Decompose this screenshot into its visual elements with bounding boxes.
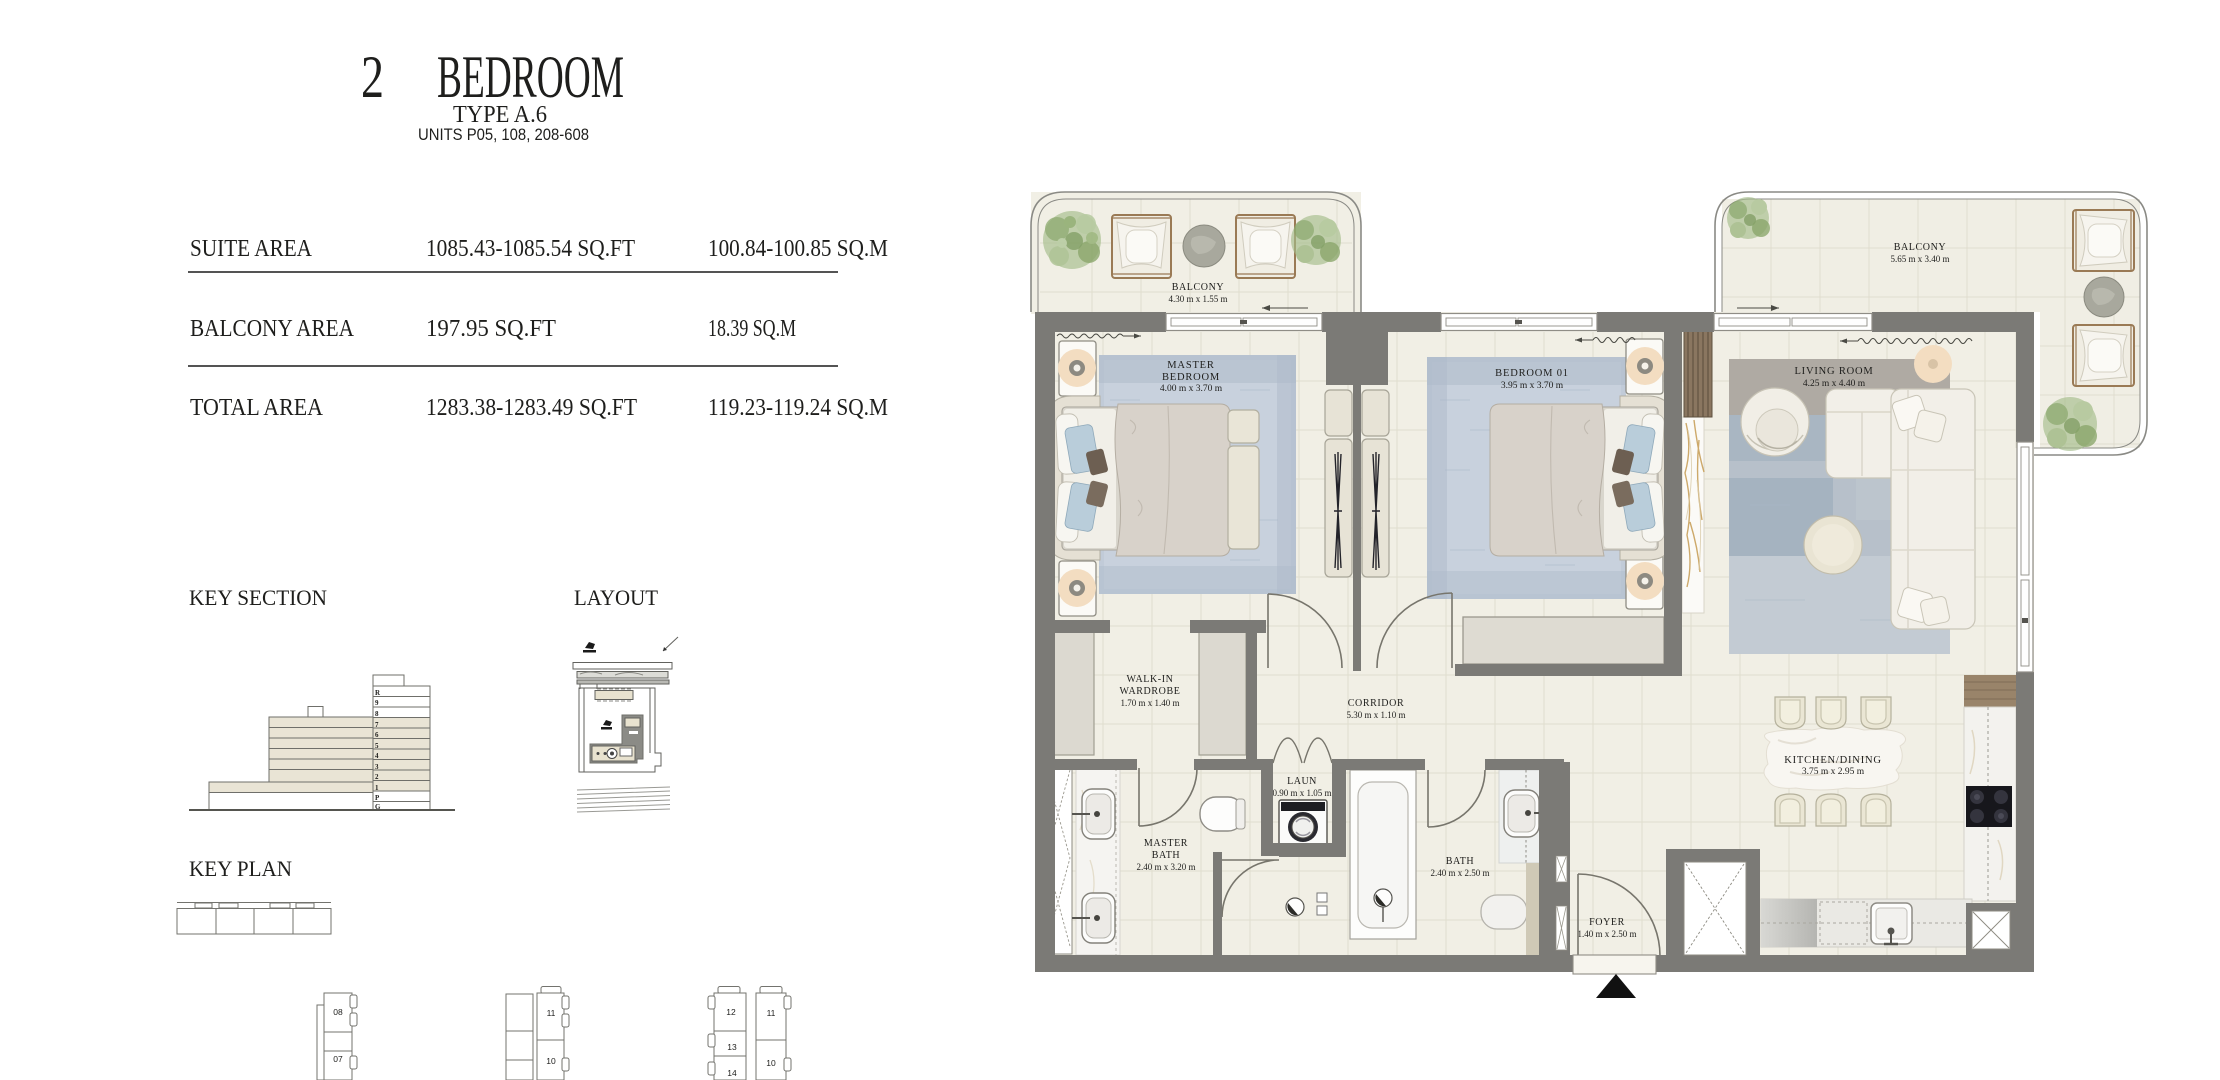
svg-text:10: 10	[766, 1058, 776, 1068]
svg-text:KEY PLAN: KEY PLAN	[189, 856, 292, 881]
svg-text:3.95 m x 3.70 m: 3.95 m x 3.70 m	[1501, 381, 1564, 391]
svg-text:BEDROOM 01: BEDROOM 01	[1495, 368, 1569, 379]
svg-text:14: 14	[727, 1068, 737, 1078]
svg-text:100.84-100.85 SQ.M: 100.84-100.85 SQ.M	[708, 236, 888, 262]
svg-text:3.75 m x 2.95 m: 3.75 m x 2.95 m	[1802, 767, 1865, 777]
svg-text:4: 4	[375, 752, 379, 760]
svg-text:CORRIDOR: CORRIDOR	[1348, 698, 1404, 709]
svg-text:WARDROBE: WARDROBE	[1120, 686, 1181, 697]
svg-text:4.30 m x 1.55 m: 4.30 m x 1.55 m	[1168, 294, 1227, 304]
svg-text:G: G	[375, 803, 381, 811]
svg-text:LIVING ROOM: LIVING ROOM	[1794, 366, 1873, 377]
svg-text:1: 1	[375, 784, 379, 792]
svg-text:08: 08	[333, 1007, 343, 1017]
svg-text:BALCONY AREA: BALCONY AREA	[190, 316, 355, 342]
svg-text:MASTER: MASTER	[1167, 360, 1214, 371]
svg-text:11: 11	[767, 1008, 776, 1018]
svg-text:1.40 m x 2.50 m: 1.40 m x 2.50 m	[1577, 929, 1636, 939]
svg-text:BEDROOM: BEDROOM	[1162, 372, 1220, 383]
svg-text:07: 07	[333, 1054, 343, 1064]
svg-text:LAYOUT: LAYOUT	[574, 585, 658, 610]
svg-text:3: 3	[375, 763, 379, 771]
svg-text:WALK-IN: WALK-IN	[1127, 674, 1174, 685]
svg-text:1.70 m x 1.40 m: 1.70 m x 1.40 m	[1120, 698, 1179, 708]
svg-text:TOTAL AREA: TOTAL AREA	[190, 395, 324, 421]
svg-text:1085.43-1085.54 SQ.FT: 1085.43-1085.54 SQ.FT	[426, 236, 635, 262]
svg-text:197.95 SQ.FT: 197.95 SQ.FT	[426, 316, 556, 342]
svg-text:2.40 m x 2.50 m: 2.40 m x 2.50 m	[1430, 868, 1489, 878]
svg-text:8: 8	[375, 710, 379, 718]
svg-text:P: P	[375, 794, 380, 802]
svg-text:1283.38-1283.49 SQ.FT: 1283.38-1283.49 SQ.FT	[426, 395, 637, 421]
svg-text:SUITE AREA: SUITE AREA	[190, 236, 313, 262]
svg-text:10: 10	[546, 1056, 556, 1066]
svg-text:9: 9	[375, 699, 379, 707]
svg-text:LAUN: LAUN	[1287, 776, 1317, 787]
svg-text:BATH: BATH	[1152, 850, 1181, 861]
svg-text:0.90 m x 1.05 m: 0.90 m x 1.05 m	[1272, 788, 1331, 798]
svg-text:BEDROOM: BEDROOM	[437, 44, 624, 110]
svg-text:2: 2	[361, 44, 384, 110]
svg-text:11: 11	[547, 1008, 556, 1018]
svg-text:13: 13	[727, 1042, 737, 1052]
svg-text:4.25 m x 4.40 m: 4.25 m x 4.40 m	[1803, 379, 1866, 389]
svg-text:4.00 m x 3.70 m: 4.00 m x 3.70 m	[1160, 384, 1223, 394]
svg-text:MASTER: MASTER	[1144, 838, 1188, 849]
svg-text:BALCONY: BALCONY	[1894, 242, 1947, 253]
svg-text:18.39 SQ.M: 18.39 SQ.M	[708, 316, 796, 342]
svg-text:7: 7	[375, 721, 379, 729]
svg-text:12: 12	[726, 1007, 736, 1017]
svg-text:6: 6	[375, 731, 379, 739]
svg-text:5: 5	[375, 742, 379, 750]
svg-text:KEY SECTION: KEY SECTION	[189, 585, 327, 610]
svg-text:FOYER: FOYER	[1589, 917, 1625, 928]
svg-text:2: 2	[375, 773, 379, 781]
svg-text:5.30 m x 1.10 m: 5.30 m x 1.10 m	[1346, 710, 1405, 720]
svg-text:119.23-119.24 SQ.M: 119.23-119.24 SQ.M	[708, 395, 888, 421]
svg-text:2.40 m x 3.20 m: 2.40 m x 3.20 m	[1136, 862, 1195, 872]
svg-text:UNITS P05, 108, 208-608: UNITS P05, 108, 208-608	[418, 125, 589, 144]
svg-text:BATH: BATH	[1446, 856, 1475, 867]
svg-text:5.65 m x 3.40 m: 5.65 m x 3.40 m	[1890, 254, 1949, 264]
svg-text:KITCHEN/DINING: KITCHEN/DINING	[1784, 755, 1882, 766]
svg-text:BALCONY: BALCONY	[1172, 282, 1225, 293]
